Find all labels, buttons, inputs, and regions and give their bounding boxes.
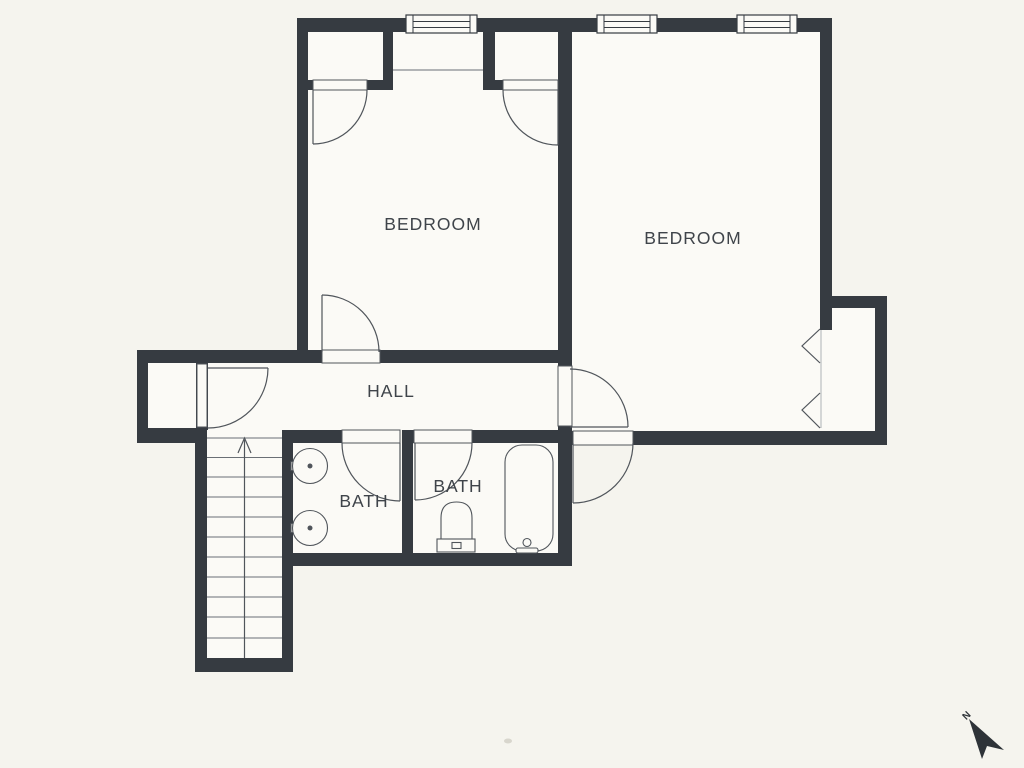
- closet-nook-opening-floor: [820, 330, 832, 431]
- room-label-bedroom-right: BEDROOM: [644, 228, 741, 248]
- bath-left-door-opening: [342, 430, 400, 443]
- wall-stairs-south: [195, 658, 293, 672]
- bedroom-left-door-opening: [322, 350, 380, 363]
- wall-baths-south: [282, 553, 572, 566]
- floorplan-svg: BEDROOM BEDROOM HALL BATH BATH N: [0, 0, 1024, 768]
- wall-bath-north-a: [282, 430, 342, 443]
- wall-closet-left-east: [383, 18, 393, 90]
- wall-closet-right-west: [483, 18, 495, 90]
- window-bedroom-right-2: [737, 15, 797, 33]
- window-bedroom-right-1: [597, 15, 657, 33]
- hall-floor: [148, 363, 558, 430]
- bedroom-right-south-door-opening: [573, 431, 633, 445]
- wall-bath-north-b: [402, 430, 415, 443]
- wall-stairs-west: [195, 430, 207, 672]
- window-bedroom-left: [406, 15, 477, 33]
- floorplan-canvas: BEDROOM BEDROOM HALL BATH BATH N: [0, 0, 1024, 768]
- hall-closet-door-opening: [197, 364, 207, 427]
- closet-left-door-opening: [313, 80, 367, 90]
- wall-bath-north-c: [472, 430, 558, 443]
- wall-bedroom-left-west: [297, 18, 308, 362]
- bath-right-door-opening: [414, 430, 472, 443]
- closet-nook-floor: [832, 308, 875, 433]
- toilet-icon: [437, 502, 475, 552]
- bathtub-icon: [505, 445, 553, 553]
- room-label-hall: HALL: [367, 381, 415, 401]
- room-label-bath-right: BATH: [433, 476, 482, 496]
- closet-right-door-opening: [503, 80, 558, 90]
- wall-nook-east: [875, 296, 887, 445]
- windows: [406, 15, 797, 33]
- wall-between-baths: [402, 443, 413, 553]
- smudge-dot: [504, 739, 512, 744]
- wall-bedroom-right-east: [820, 18, 832, 330]
- wall-bath-right-east: [558, 443, 572, 566]
- room-label-bath-left: BATH: [339, 491, 388, 511]
- room-label-bedroom-left: BEDROOM: [384, 214, 481, 234]
- bedroom-right-door-opening: [558, 366, 572, 426]
